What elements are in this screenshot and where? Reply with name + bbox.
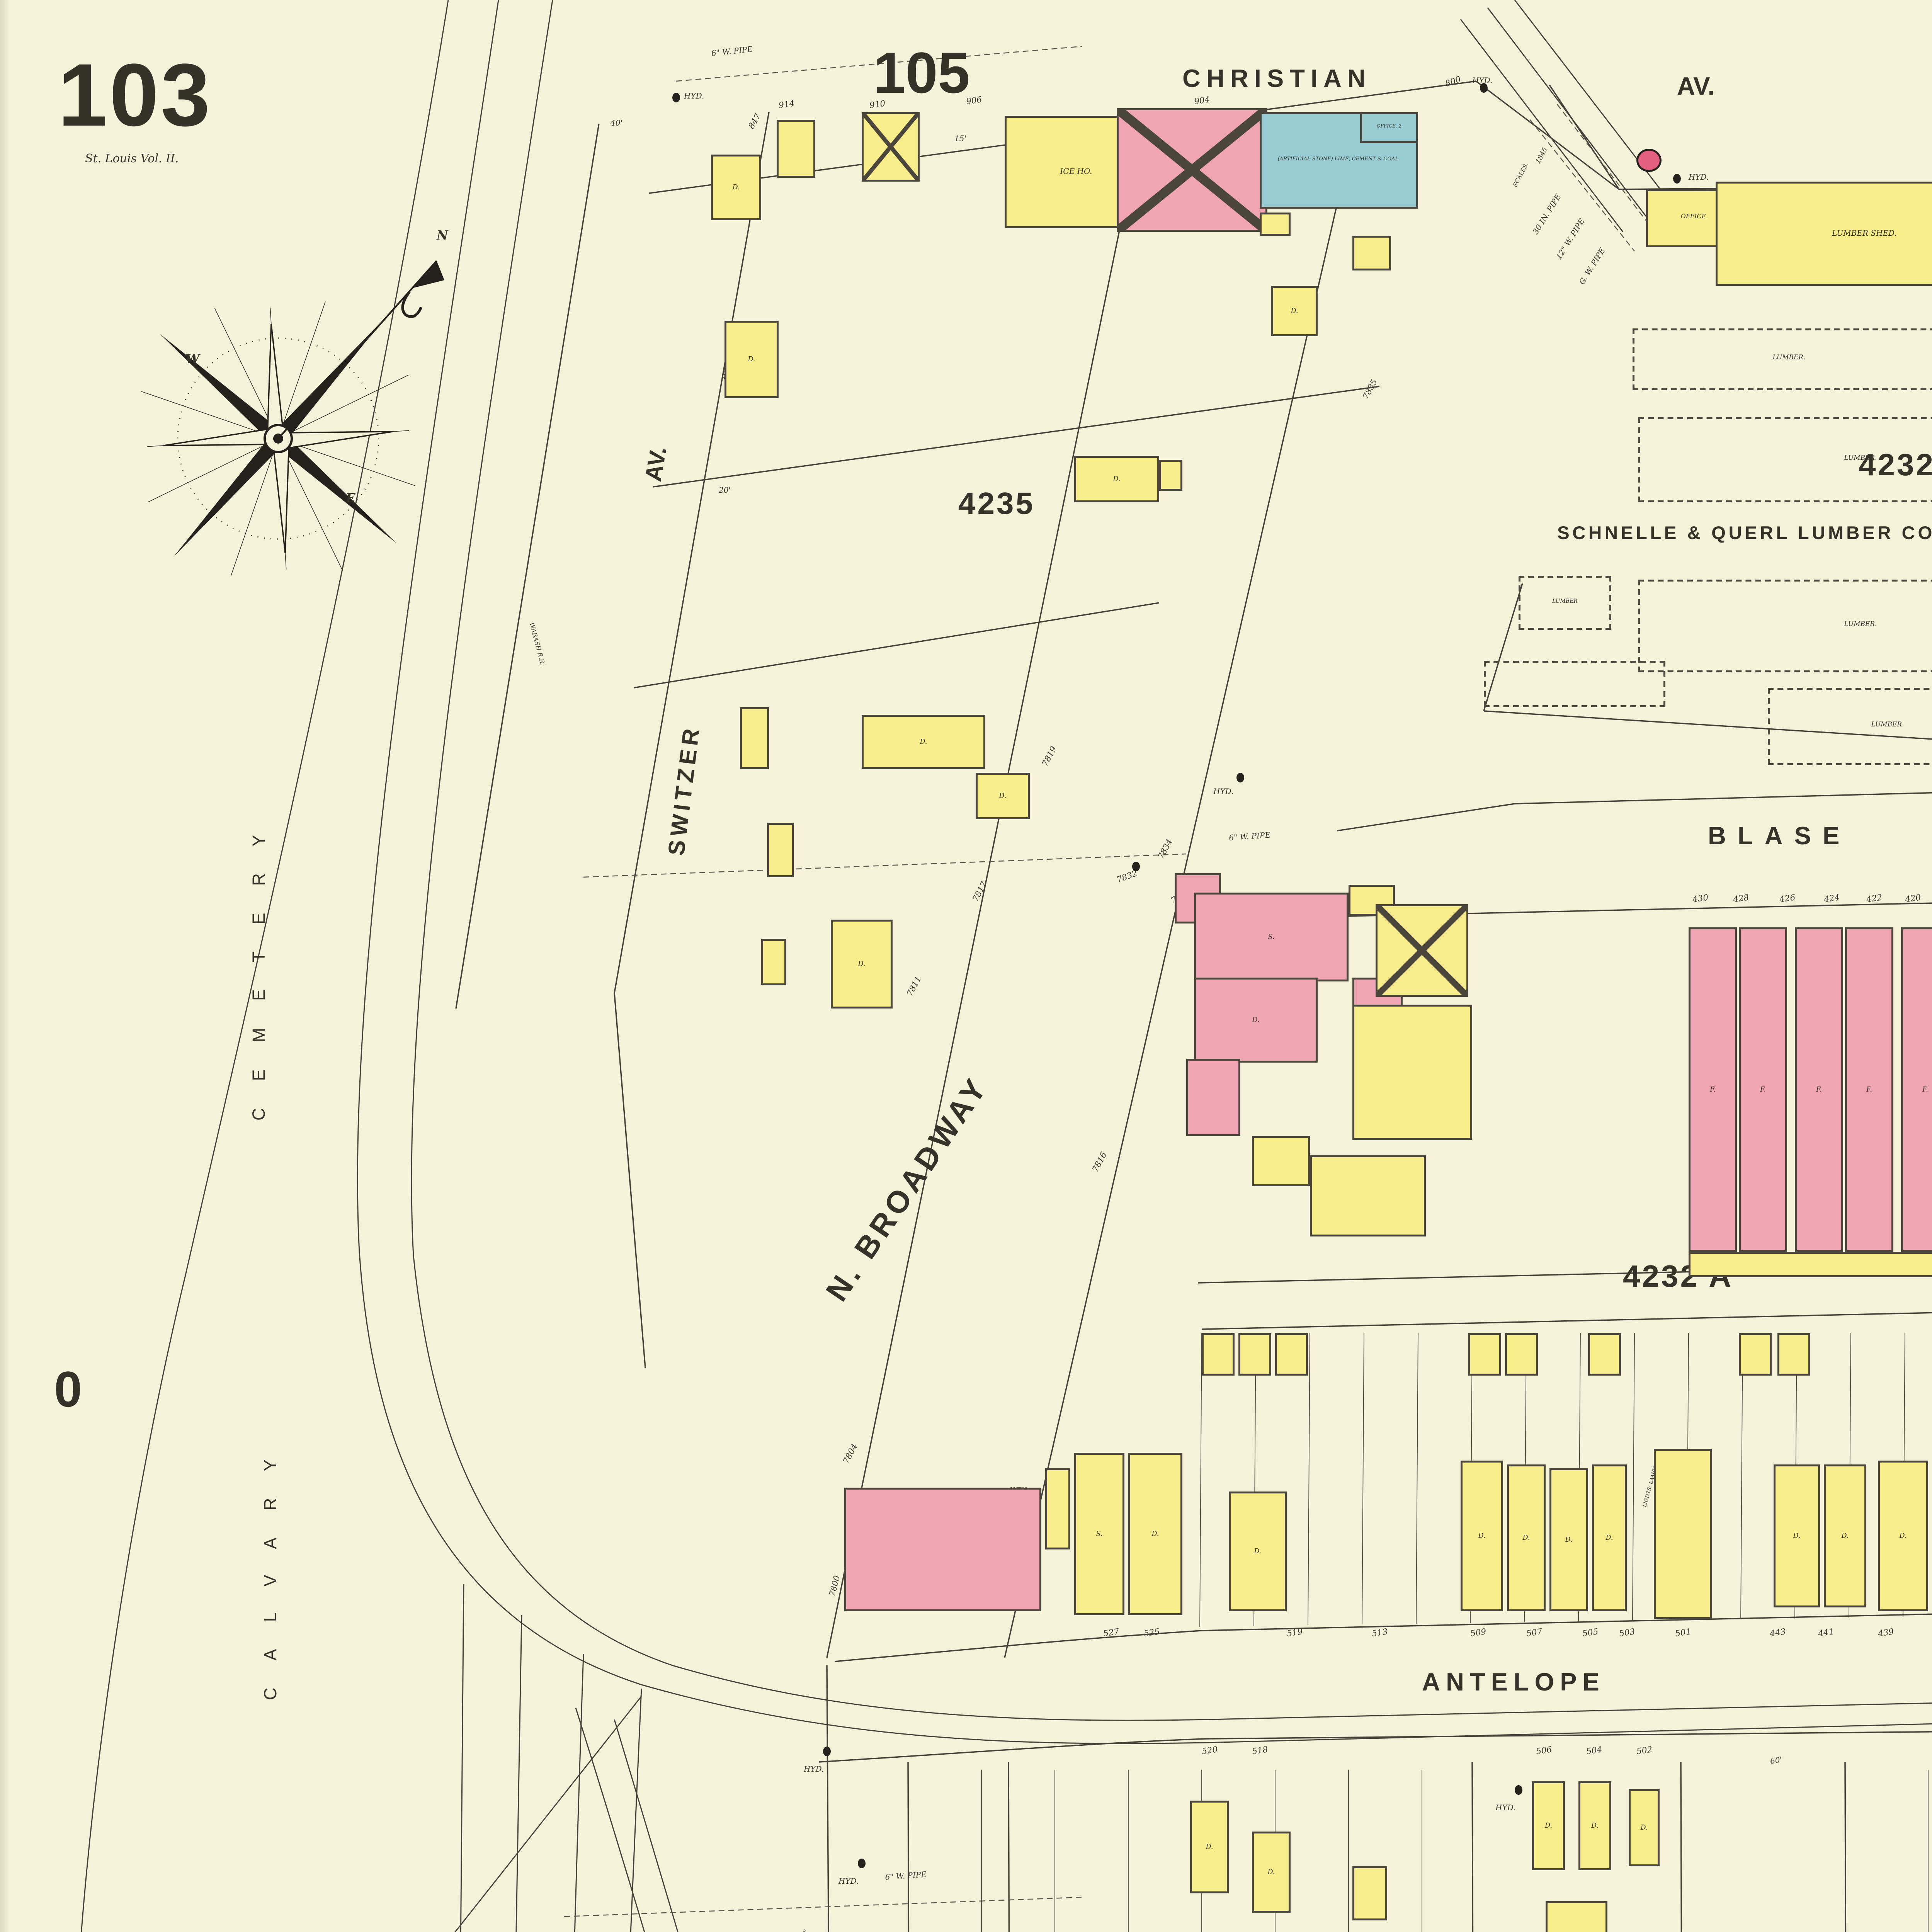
building: LUMBER. — [1638, 580, 1932, 672]
map-label: AV. — [1677, 73, 1715, 99]
building — [1505, 1333, 1538, 1376]
building — [1202, 1333, 1235, 1376]
building: D. — [1461, 1461, 1503, 1611]
map-label: CHRISTIAN — [1182, 66, 1371, 91]
building: LUMBER — [1519, 576, 1611, 630]
sanborn-map-sheet: N W E 103 St. Louis Vol. II. 105 106 104… — [0, 0, 1932, 1932]
building: D. — [862, 715, 985, 769]
building: D. — [1507, 1464, 1546, 1611]
building — [1186, 1059, 1240, 1136]
building — [1376, 904, 1468, 997]
map-note: HYD. — [1213, 788, 1233, 796]
building — [1777, 1333, 1810, 1376]
building: D. — [1824, 1464, 1866, 1607]
map-label: BLASE — [1708, 823, 1851, 848]
building — [1588, 1333, 1621, 1376]
building: LUMBER SHED. — [1716, 182, 1932, 286]
building: F. — [1845, 927, 1893, 1252]
building — [1546, 1901, 1607, 1932]
sheet-number: 103 — [58, 50, 212, 139]
building — [1352, 1005, 1472, 1140]
compass-needle-pointer — [413, 261, 444, 288]
map-note: HYD. — [684, 93, 704, 100]
map-note: HYD. — [804, 1766, 824, 1774]
building: S. — [1074, 1453, 1124, 1615]
building — [1117, 108, 1267, 232]
building: D. — [1532, 1781, 1565, 1870]
building — [740, 707, 769, 769]
building: D. — [1128, 1453, 1182, 1615]
compass-east-label: E — [346, 491, 355, 506]
building — [777, 120, 815, 178]
map-label: SCHNELLE & QUERL LUMBER CO. — [1557, 526, 1932, 544]
building — [1045, 1468, 1070, 1549]
building: D. — [1074, 456, 1159, 502]
building: D. — [1578, 1781, 1611, 1870]
map-note: HYD. — [1495, 1804, 1515, 1812]
building: D. — [724, 321, 779, 398]
building: OFFICE. 2 — [1360, 112, 1418, 143]
building — [862, 112, 920, 182]
map-note: 40' — [611, 120, 622, 128]
building: D. — [1629, 1789, 1660, 1866]
building — [767, 823, 794, 877]
building — [1159, 460, 1182, 491]
paper-left-edge — [0, 0, 10, 1932]
compass-rose — [85, 245, 471, 632]
building — [1352, 1866, 1387, 1920]
building: LUMBER. — [1633, 328, 1932, 390]
building — [1654, 1449, 1712, 1619]
building — [1275, 1333, 1308, 1376]
building: F. — [1901, 927, 1932, 1252]
building: D. — [1878, 1461, 1928, 1611]
building: S. — [1194, 893, 1349, 981]
building — [1739, 1333, 1772, 1376]
building — [1689, 1252, 1932, 1277]
building: D. — [711, 155, 761, 220]
building: F. — [1739, 927, 1787, 1252]
building: D. — [1229, 1492, 1287, 1611]
map-canvas: N W E 103 St. Louis Vol. II. 105 106 104… — [0, 0, 1932, 1932]
map-label: CALVARY — [263, 1432, 280, 1700]
building — [1260, 213, 1291, 236]
building: F. — [1795, 927, 1843, 1252]
building: D. — [1271, 286, 1318, 336]
building: D. — [1774, 1464, 1820, 1607]
match-marker-left: 0 — [54, 1364, 82, 1414]
compass-north-label: N — [437, 228, 448, 243]
building — [1484, 661, 1665, 707]
building: D. — [831, 920, 893, 1009]
sheet-subtitle: St. Louis Vol. II. — [85, 155, 179, 166]
building — [1352, 236, 1391, 270]
building: D. — [976, 773, 1030, 819]
map-note: 20' — [719, 487, 731, 495]
map-label: CEMETERY — [251, 808, 269, 1121]
building — [1238, 1333, 1271, 1376]
adjacent-sheet-105: 105 — [873, 46, 970, 104]
building — [1468, 1333, 1501, 1376]
building — [761, 939, 786, 985]
map-note: HYD. — [1689, 174, 1709, 182]
map-note: 15' — [954, 135, 966, 143]
building: F. — [1689, 927, 1737, 1252]
building: LUMBER. — [1768, 688, 1932, 765]
building: LUMBER. — [1638, 417, 1932, 502]
map-label: ANTELOPE — [1422, 1669, 1605, 1694]
map-note: HYD. — [838, 1878, 859, 1886]
building: D. — [1194, 978, 1318, 1063]
building — [1252, 1136, 1310, 1186]
map-label: AV. — [641, 445, 670, 483]
building: D. — [1252, 1832, 1291, 1913]
map-note: 60' — [1770, 1757, 1782, 1766]
map-label: 4235 — [958, 491, 1035, 522]
building: D. — [1592, 1464, 1627, 1611]
compass-west-label: W — [185, 352, 200, 367]
building — [844, 1488, 1041, 1611]
building — [1310, 1155, 1426, 1236]
building: D. — [1190, 1801, 1229, 1893]
building: D. — [1549, 1468, 1588, 1611]
